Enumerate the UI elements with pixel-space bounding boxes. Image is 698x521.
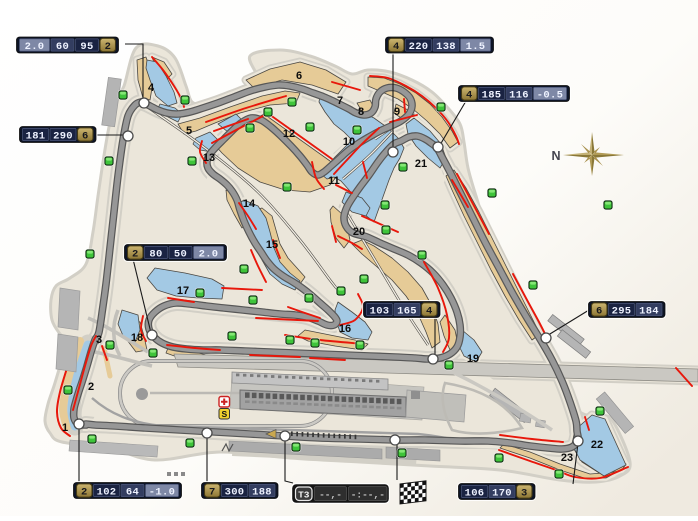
svg-text:60: 60	[56, 41, 69, 53]
svg-text:S: S	[221, 409, 227, 419]
svg-text:64: 64	[126, 486, 139, 498]
svg-text:116: 116	[509, 89, 529, 101]
svg-text:165: 165	[397, 305, 417, 317]
svg-text:6: 6	[296, 70, 302, 82]
svg-text:18: 18	[131, 332, 143, 344]
svg-text:N: N	[551, 149, 560, 163]
svg-text:3: 3	[96, 334, 102, 346]
svg-text:23: 23	[561, 452, 573, 464]
svg-text:4: 4	[393, 41, 399, 53]
svg-text:4: 4	[466, 89, 472, 101]
svg-text:19: 19	[467, 353, 479, 365]
svg-text:188: 188	[252, 486, 272, 498]
svg-text:185: 185	[482, 89, 502, 101]
svg-text:2: 2	[105, 41, 111, 53]
svg-text:220: 220	[409, 41, 429, 53]
svg-text:1: 1	[62, 422, 68, 434]
svg-text:22: 22	[591, 439, 603, 451]
svg-text:2: 2	[132, 248, 138, 260]
svg-text:13: 13	[203, 152, 215, 164]
svg-text:170: 170	[492, 487, 512, 499]
svg-text:300: 300	[225, 486, 245, 498]
svg-text:20: 20	[353, 226, 365, 238]
svg-text:295: 295	[612, 305, 632, 317]
svg-text:95: 95	[80, 41, 93, 53]
svg-text:7: 7	[209, 486, 215, 498]
svg-text:9: 9	[394, 106, 400, 118]
svg-text:5: 5	[186, 125, 192, 137]
svg-text:16: 16	[339, 323, 351, 335]
svg-text:3: 3	[521, 487, 527, 499]
svg-text:106: 106	[465, 487, 485, 499]
svg-text:T3: T3	[298, 490, 310, 501]
svg-text:103: 103	[370, 305, 390, 317]
svg-text:12: 12	[283, 128, 295, 140]
svg-text:6: 6	[82, 130, 88, 142]
svg-text:10: 10	[343, 136, 355, 148]
svg-text:2.0: 2.0	[25, 41, 45, 53]
svg-text:2: 2	[81, 486, 87, 498]
svg-text:2: 2	[88, 381, 94, 393]
svg-text:-0.5: -0.5	[537, 89, 563, 101]
svg-text:181: 181	[26, 130, 46, 142]
svg-text:6: 6	[596, 305, 602, 317]
svg-text:102: 102	[97, 486, 117, 498]
svg-text:80: 80	[149, 248, 162, 260]
svg-text:50: 50	[174, 248, 187, 260]
svg-text:15: 15	[266, 239, 278, 251]
svg-text:-1.0: -1.0	[149, 486, 175, 498]
svg-text:184: 184	[639, 305, 659, 317]
svg-text:8: 8	[358, 106, 364, 118]
svg-text:138: 138	[436, 41, 456, 53]
svg-text:4: 4	[148, 82, 155, 94]
svg-text:7: 7	[337, 95, 343, 107]
svg-text:2.0: 2.0	[199, 248, 219, 260]
svg-text:11: 11	[328, 175, 340, 187]
svg-text:290: 290	[53, 130, 73, 142]
svg-text:--,-: --,-	[319, 489, 342, 500]
svg-text:21: 21	[415, 158, 427, 170]
svg-text:1.5: 1.5	[466, 41, 486, 53]
svg-text:17: 17	[177, 285, 189, 297]
svg-text:14: 14	[243, 198, 256, 210]
svg-text:-:--,-: -:--,-	[351, 489, 385, 500]
svg-text:4: 4	[426, 305, 432, 317]
